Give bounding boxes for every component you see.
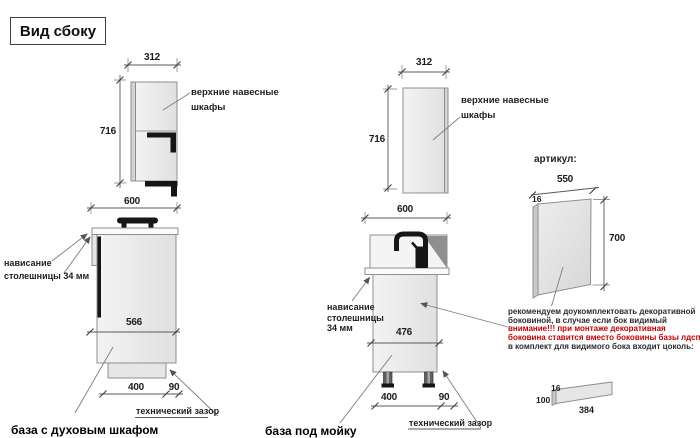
dim-width-middle-upper: 312 xyxy=(404,57,444,68)
left-upper-cabinet-drawing xyxy=(114,58,190,197)
countertop xyxy=(92,228,178,235)
plinth-panel xyxy=(108,363,166,378)
dim-gap-sink-base: 90 xyxy=(433,392,455,403)
decorative-panel-note: рекомендуем доукомплектовать декоративно… xyxy=(508,308,700,352)
panel-face xyxy=(538,199,591,295)
oven-door-edge xyxy=(98,237,102,318)
label-upper-cabinets-middle: верхние навесные шкафы xyxy=(461,93,549,123)
dim-plinth-sink-base: 400 xyxy=(369,392,409,403)
dim-panel-width: 550 xyxy=(545,174,585,185)
upper-cabinet-back-panel xyxy=(131,82,136,181)
label-technical-gap-middle: технический зазор xyxy=(409,418,492,428)
dim-plinth-oven-base: 400 xyxy=(116,382,156,393)
dim-inner-oven-base: 566 xyxy=(114,317,154,328)
upper-cabinet-body xyxy=(403,88,448,193)
plinth-face xyxy=(556,382,612,404)
dim-height-middle-upper: 716 xyxy=(357,134,385,145)
dim-width-oven-base: 600 xyxy=(112,196,152,207)
panel-edge xyxy=(533,204,538,298)
note-line-3: в комплект для видимого бока входит цоко… xyxy=(508,343,700,352)
dim-width-sink-base: 600 xyxy=(385,204,425,215)
caption-sink-base: база под мойку xyxy=(265,424,357,438)
dim-gap-oven-base: 90 xyxy=(163,382,185,393)
label-article: артикул: xyxy=(534,154,577,165)
dim-height-left-upper: 716 xyxy=(88,126,116,137)
label-technical-gap-left: технический зазор xyxy=(136,406,219,416)
countertop xyxy=(365,268,449,275)
label-countertop-overhang-middle: нависание столешницы 34 мм xyxy=(327,302,384,334)
oven-cabinet-body xyxy=(97,235,176,364)
dim-plinth-thickness: 16 xyxy=(551,383,560,393)
dim-plinth-length: 384 xyxy=(579,405,594,415)
dim-inner-sink-base: 476 xyxy=(384,327,424,338)
dim-panel-height: 700 xyxy=(609,233,625,244)
dim-panel-thickness: 16 xyxy=(532,194,541,204)
cabinet-leg xyxy=(423,372,436,388)
drawing-linework xyxy=(0,0,700,438)
caption-oven-base: база с духовым шкафом xyxy=(11,423,158,437)
decorative-side-panel-drawing xyxy=(529,187,612,406)
label-upper-cabinets-left: верхние навесные шкафы xyxy=(191,85,279,115)
label-countertop-overhang-left: нависание столешницы 34 мм xyxy=(4,257,89,283)
side-view-drawing-sheet: Вид сбоку 312 716 верхние навесные шкафы… xyxy=(0,0,700,438)
dim-plinth-height: 100 xyxy=(536,395,550,405)
page-title: Вид сбоку xyxy=(10,17,106,45)
middle-upper-cabinet-drawing xyxy=(383,65,460,193)
cabinet-leg xyxy=(382,372,395,388)
dim-width-left-upper: 312 xyxy=(132,52,172,63)
